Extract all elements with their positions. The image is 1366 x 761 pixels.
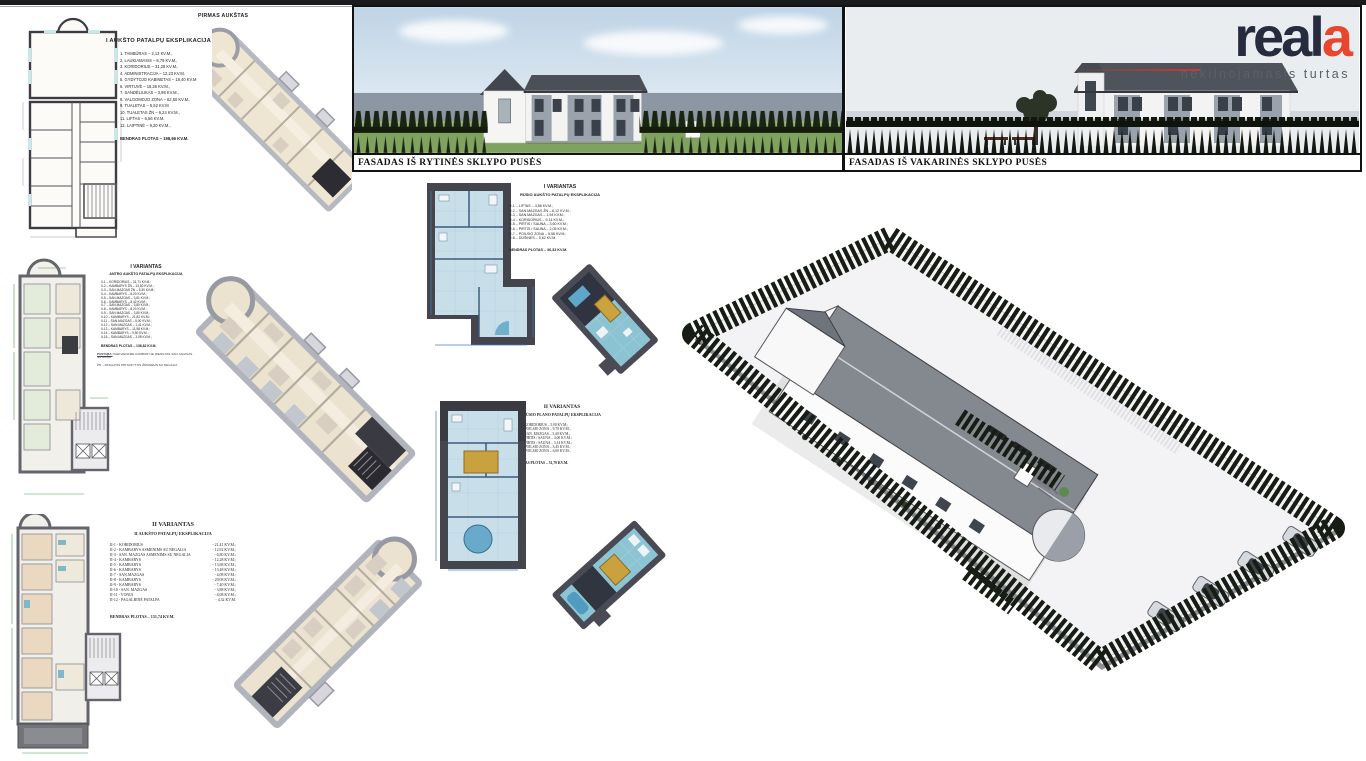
facade-west-caption: FASADAS IŠ VAKARINĖS SKLYPO PUSĖS — [845, 153, 1360, 170]
sauna-bench — [464, 451, 498, 473]
variant2-floor2-plan-2d — [8, 514, 122, 756]
explication-title: I AUKŠTO PATALPŲ EKSPLIKACIJA — [106, 38, 206, 44]
variant1-basement-render-3d — [543, 253, 667, 385]
logo-tagline: nekilnojamasis turtas — [1181, 68, 1350, 81]
variant-subtitle: RŪSIO AUKŠTO PATALPŲ EKSPLIKACIJA — [505, 192, 615, 197]
facade-west-panel: reala nekilnojamasis turtas FASADAS IŠ V… — [843, 5, 1362, 172]
variant2-axon-3d — [222, 518, 434, 750]
logo-accent-letter: a — [1322, 5, 1350, 68]
site-plan-3d — [678, 226, 1366, 760]
explication-item: 5. GYDYTOJO KABINETAS – 18,40 KV.M — [120, 77, 206, 84]
axon-building — [232, 527, 434, 739]
facade-east-render — [354, 7, 842, 153]
shower — [464, 525, 492, 553]
explication-item: R-8 – DŪŠINĖS – 5,62 KV.M. — [509, 236, 615, 241]
tree-row — [846, 117, 1359, 153]
explication-total: BENDRAS PLOTAS – 131,74 KV.M. — [110, 614, 236, 619]
reala-logo: reala nekilnojamasis turtas — [1181, 9, 1350, 81]
variant2-basement-plan-2d — [434, 399, 532, 573]
render-room — [543, 263, 659, 382]
explication-total: BENDRAS PLOTAS – 36,33 KV.M. — [509, 248, 615, 252]
logo-text: real — [1234, 5, 1322, 68]
facade-east-caption: FASADAS IŠ RYTINĖS SKLYPO PUSĖS — [354, 153, 842, 170]
variant-title: I VARIANTAS — [505, 184, 615, 190]
explication-total: BENDRAS PLOTAS – 198,66 KV.M. — [120, 136, 206, 141]
first-floor-explication: I AUKŠTO PATALPŲ EKSPLIKACIJA 1. TAMBŪRA… — [106, 38, 206, 141]
axon-building — [212, 14, 352, 213]
variant2-basement-render-3d — [545, 513, 673, 641]
presentation-sheet: I AUKŠTO PATALPŲ EKSPLIKACIJA 1. TAMBŪRA… — [0, 0, 1366, 761]
facade-east-house — [480, 69, 648, 144]
render-room — [551, 520, 672, 637]
first-floor-axon-3d — [212, 6, 352, 241]
explication-item: II-12 - PAGALBINĖ PATALPA- 4,32 KV.M. — [110, 598, 236, 603]
variant1-axon-3d — [182, 252, 432, 537]
tree-row-right — [639, 111, 842, 153]
variant-title: II VARIANTAS — [110, 521, 236, 528]
explication-item: 12. LAIPTINĖ – 9,20 KV.M., — [120, 123, 206, 130]
variant1-basement-explication: I VARIANTAS RŪSIO AUKŠTO PATALPŲ EKSPLIK… — [505, 184, 615, 252]
plan-walls — [30, 19, 116, 237]
axon-building — [182, 261, 424, 504]
facade-east-panel: FASADAS IŠ RYTINĖS SKLYPO PUSĖS — [352, 5, 844, 172]
variant2-floor2-explication: II VARIANTAS II AUKŠTO PATALPŲ EKSPLIKAC… — [110, 521, 236, 619]
tree-row-left — [354, 111, 488, 153]
variant-subtitle: II AUKŠTO PATALPŲ EKSPLIKACIJA — [110, 531, 236, 536]
